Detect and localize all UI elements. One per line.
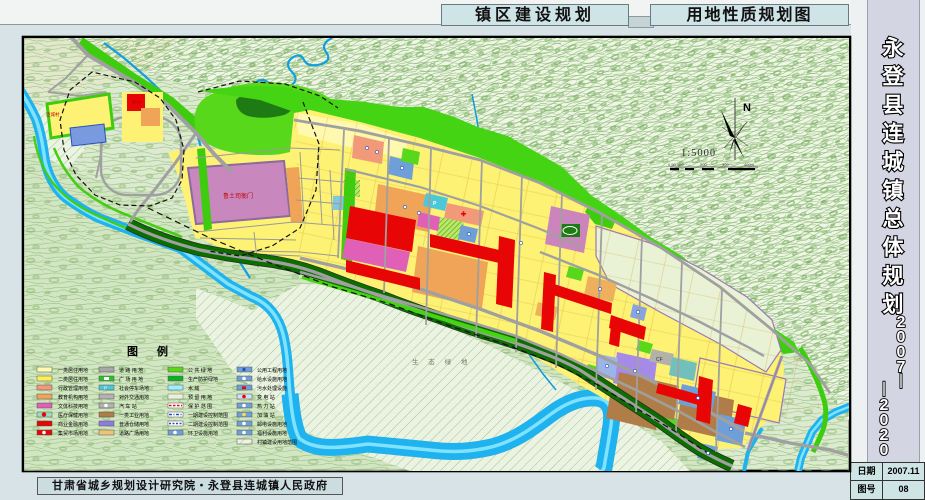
svg-text:保 护 范 围: 保 护 范 围 <box>188 403 212 410</box>
svg-text:P: P <box>104 386 107 391</box>
svg-text:文体科技用地: 文体科技用地 <box>58 403 88 410</box>
svg-text:二类居住用地: 二类居住用地 <box>58 376 88 383</box>
svg-text:污水处理设施: 污水处理设施 <box>257 385 287 392</box>
svg-text:新村: 新村 <box>132 99 141 106</box>
svg-text:村镇建设用地范围: 村镇建设用地范围 <box>257 439 297 446</box>
svg-text:1:5000: 1:5000 <box>681 148 716 159</box>
svg-text:300: 300 <box>722 162 729 167</box>
svg-text:公用工程用地: 公用工程用地 <box>257 367 287 374</box>
svg-text:福利设施用地: 福利设施用地 <box>257 430 287 437</box>
svg-text:商业金融用地: 商业金融用地 <box>58 421 88 428</box>
svg-text:图 例: 图 例 <box>127 344 176 358</box>
svg-text:200: 200 <box>700 162 707 167</box>
svg-text:一类居住用地: 一类居住用地 <box>58 367 88 374</box>
svg-text:连城村: 连城村 <box>46 111 60 118</box>
svg-text:生 态 绿 地: 生 态 绿 地 <box>412 357 471 366</box>
svg-text:变 电 站: 变 电 站 <box>257 394 275 401</box>
svg-text:一类工业用地: 一类工业用地 <box>119 412 149 419</box>
svg-text:二期建设控制范围: 二期建设控制范围 <box>188 421 228 428</box>
svg-text:一期建设控制范围: 一期建设控制范围 <box>188 412 228 419</box>
svg-text:公 共 绿 地: 公 共 绿 地 <box>188 367 212 374</box>
svg-text:给水设施用地: 给水设施用地 <box>257 376 287 383</box>
svg-text:医疗保健用地: 医疗保健用地 <box>58 412 88 419</box>
svg-text:热 力 站: 热 力 站 <box>257 403 275 410</box>
svg-text:汽 车 站: 汽 车 站 <box>119 403 137 410</box>
svg-text:环卫设施用地: 环卫设施用地 <box>188 430 218 437</box>
svg-text:广 场 用 地: 广 场 用 地 <box>119 376 143 383</box>
svg-text:集贸市场用地: 集贸市场用地 <box>58 430 88 437</box>
svg-text:普通仓储用地: 普通仓储用地 <box>119 421 149 428</box>
svg-text:CF: CF <box>656 357 663 363</box>
svg-text:鲁土司衙门: 鲁土司衙门 <box>223 192 253 200</box>
svg-text:行政管理用地: 行政管理用地 <box>58 385 88 392</box>
svg-text:N: N <box>743 102 751 114</box>
svg-text:道 路 用 地: 道 路 用 地 <box>119 367 143 374</box>
svg-text:生产防护绿地: 生产防护绿地 <box>188 376 218 383</box>
svg-text:0 50 100: 0 50 100 <box>668 162 684 167</box>
svg-text:水 域: 水 域 <box>188 385 199 392</box>
svg-text:邮电设施用地: 邮电设施用地 <box>257 421 287 428</box>
svg-text:对外交通用地: 对外交通用地 <box>119 394 149 401</box>
svg-text:加 油 站: 加 油 站 <box>257 412 275 419</box>
svg-text:预 留 用 地: 预 留 用 地 <box>188 394 212 401</box>
svg-text:社会停车场地: 社会停车场地 <box>119 385 149 392</box>
svg-text:道路广场用地: 道路广场用地 <box>119 430 149 437</box>
svg-text:教育机构用地: 教育机构用地 <box>58 394 88 401</box>
svg-text:400m: 400m <box>744 162 755 167</box>
